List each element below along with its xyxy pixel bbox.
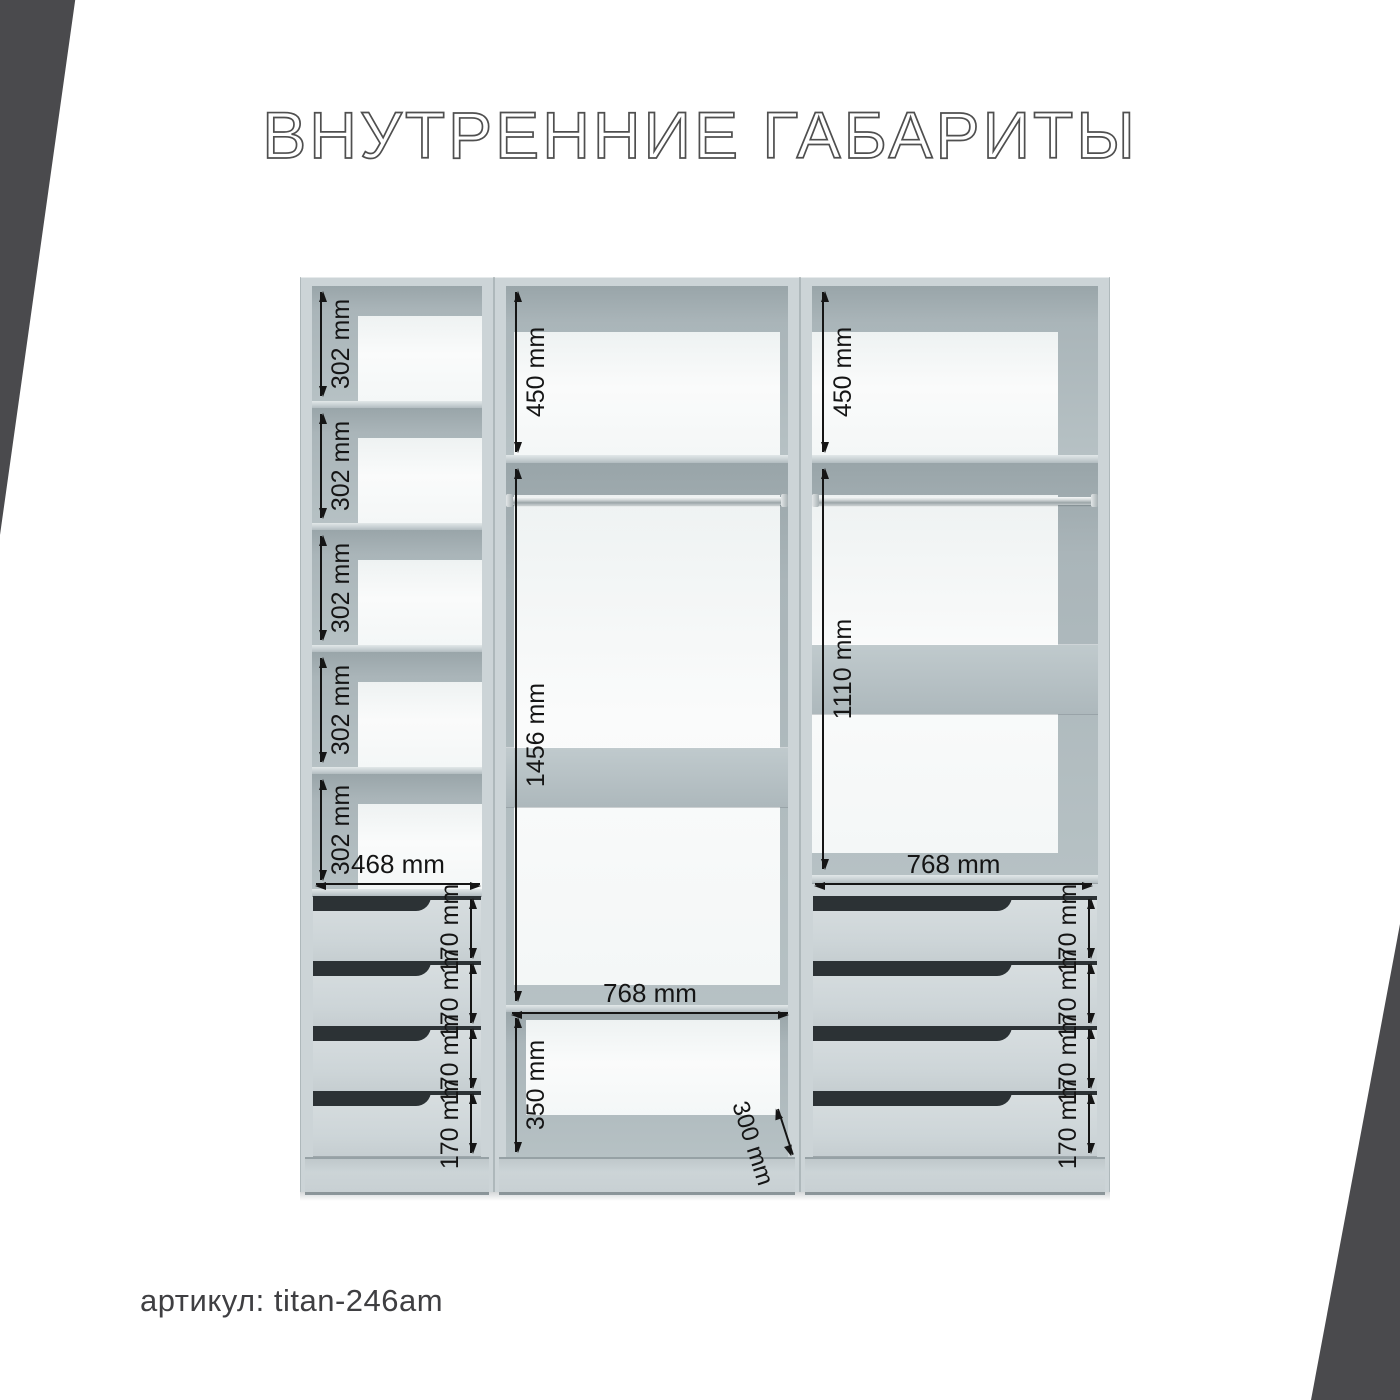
dim-label: 768 mm: [907, 849, 1001, 880]
dim-left-drawer-1: 170 mm: [470, 899, 472, 958]
drawer-handle-notch: [813, 1026, 1012, 1041]
dim-right-width: 768 mm: [815, 883, 1092, 885]
dim-left-shelf-5: 302 mm: [320, 780, 322, 880]
dim-label: 350 mm: [522, 1040, 551, 1130]
dim-left-drawer-4: 170 mm: [470, 1094, 472, 1153]
shelf: [312, 767, 482, 774]
drawer-handle-notch: [813, 896, 1012, 911]
compartment-back-panel: [358, 316, 482, 401]
dim-label: 170 mm: [1054, 1078, 1083, 1168]
dim-label: 302 mm: [327, 543, 356, 633]
dim-middle-hanging-height: 1456 mm: [515, 469, 517, 1001]
drawer-handle-notch: [813, 961, 1012, 976]
dim-middle-bottom-height: 350 mm: [515, 1018, 517, 1152]
article-code: артикул: titan-246am: [140, 1283, 443, 1319]
dim-left-shelf-1: 302 mm: [320, 292, 322, 396]
dim-label: 170 mm: [436, 1078, 465, 1168]
dim-left-shelf-4: 302 mm: [320, 658, 322, 762]
dim-right-drawer-3: 170 mm: [1088, 1029, 1090, 1088]
shelf: [312, 401, 482, 408]
dim-label: 450 mm: [522, 327, 551, 417]
drawer-handle-notch: [313, 1091, 431, 1106]
dim-right-drawer-4: 170 mm: [1088, 1094, 1090, 1153]
drawer-handle-notch: [313, 896, 431, 911]
compartment-back-panel: [358, 682, 482, 767]
dim-middle-top-height: 450 mm: [515, 292, 517, 452]
corner-wedge-bottom-right: [1311, 924, 1400, 1400]
drawer-handle-notch: [313, 961, 431, 976]
dim-label: 302 mm: [327, 299, 356, 389]
dim-middle-width: 768 mm: [512, 1012, 788, 1014]
dim-label: 768 mm: [603, 978, 697, 1009]
dim-label: 1456 mm: [522, 683, 551, 787]
dim-label: 1110 mm: [829, 619, 858, 720]
shelf: [312, 523, 482, 530]
dim-left-drawer-3: 170 mm: [470, 1029, 472, 1088]
compartment-back-panel: [358, 438, 482, 523]
dim-right-drawer-1: 170 mm: [1088, 899, 1090, 958]
dim-right-drawer-2: 170 mm: [1088, 964, 1090, 1023]
wardrobe-floor-shadow: [300, 1192, 1110, 1201]
hanging-rod: [814, 497, 1096, 505]
drawer-handle-notch: [813, 1091, 1012, 1106]
left-section: 302 mm 302 mm 302 mm 302 mm 302 mm 468 m…: [300, 277, 494, 1192]
wardrobe-drawing: 302 mm 302 mm 302 mm 302 mm 302 mm 468 m…: [300, 277, 1110, 1192]
shelf: [812, 455, 1098, 463]
middle-section: 450 mm 1456 mm 768 mm 350 mm 300 mm: [494, 277, 800, 1192]
compartment-back-panel: [514, 495, 780, 985]
dim-right-hanging-height: 1110 mm: [822, 469, 824, 869]
shelf: [506, 455, 788, 463]
page-title-text: ВНУТРЕННИЕ ГАБАРИТЫ: [262, 98, 1138, 172]
dim-label: 302 mm: [327, 665, 356, 755]
dim-label: 450 mm: [829, 327, 858, 417]
compartment-back-panel: [514, 332, 780, 455]
drawer-handle-notch: [313, 1026, 431, 1041]
page: ВНУТРЕННИЕ ГАБАРИТЫ: [0, 0, 1400, 1400]
dim-left-shelf-3: 302 mm: [320, 536, 322, 640]
compartment-back-panel: [358, 560, 482, 645]
shelf: [312, 645, 482, 652]
dim-left-shelf-2: 302 mm: [320, 414, 322, 518]
dim-label: 468 mm: [351, 849, 445, 880]
dim-left-drawer-2: 170 mm: [470, 964, 472, 1023]
dim-label: 302 mm: [327, 421, 356, 511]
hanging-rod: [508, 497, 786, 505]
dim-right-top-height: 450 mm: [822, 292, 824, 452]
right-section: 450 mm 1110 mm 768 mm 170 mm 170 mm 170 …: [800, 277, 1110, 1192]
page-title: ВНУТРЕННИЕ ГАБАРИТЫ: [0, 78, 1400, 178]
